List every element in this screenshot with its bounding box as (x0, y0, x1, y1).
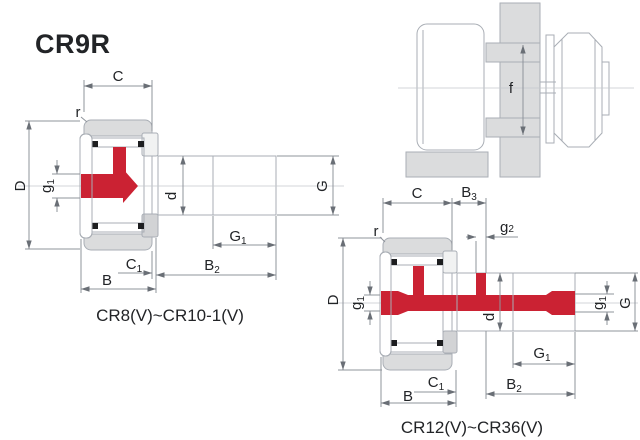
fig2-dim-label-g1-length: G1 (533, 345, 551, 364)
fig2-dim-label-c: C (412, 185, 423, 202)
fig3-plate-shoulder-top (486, 43, 540, 62)
fig2-seal-bottom-right (437, 340, 443, 346)
fig1-seal-top-right (138, 141, 144, 147)
fig1-seal-bottom-left (92, 223, 98, 229)
fig3-plate-shoulder-bottom (486, 118, 540, 137)
fig3-rail (406, 152, 488, 177)
fig2-seal-top-right (437, 259, 443, 265)
fig2-dim-label-g1-right: g1 (590, 296, 609, 310)
fig1-seal-top-left (92, 141, 98, 147)
fig2-seal-bottom-left (391, 340, 397, 346)
page-title: CR9R (35, 29, 111, 59)
fig2-dim-label-b2: B2 (506, 376, 522, 395)
fig1-dim-label-r: r (76, 104, 81, 121)
fig1-seal-bottom-right (138, 223, 144, 229)
fig1-labels: C r D g1 d G G1 B2 C1 B CR8(V)~CR10-1(V) (12, 68, 331, 325)
figure-mounting-example: f (398, 3, 634, 177)
fig3-roller (417, 24, 484, 150)
fig2-caption: CR12(V)~CR36(V) (401, 418, 543, 437)
drawing-page: C r D g1 d G G1 B2 C1 B CR8(V)~CR10-1(V) (0, 0, 640, 440)
fig2-dim-label-r: r (374, 223, 379, 240)
fig1-dim-label-b: B (102, 272, 112, 289)
fig2-dim-label-g2: g2 (500, 219, 514, 236)
fig2-dim-label-c1: C1 (428, 374, 445, 393)
fig2-dim-label-g-thread: G (617, 297, 634, 309)
figure-cr8-cr10-1: C r D g1 d G G1 B2 C1 B CR8(V)~CR10-1(V) (12, 68, 344, 325)
fig3-washer (546, 35, 554, 143)
fig1-dim-label-c1: C1 (126, 256, 143, 275)
fig2-dim-label-b: B (403, 388, 413, 405)
fig1-dim-label-d-stud: d (163, 192, 180, 200)
fig1-stud (158, 156, 276, 215)
fig1-dim-label-d-outer: D (12, 180, 29, 191)
fig1-dim-label-g1: g1 (38, 179, 57, 193)
fig1-dim-label-b2: B2 (204, 257, 220, 276)
fig2-dim-label-d-outer: D (325, 294, 342, 305)
fig2-dim-label-g1-left: g1 (348, 296, 367, 310)
fig3-mounting-plate (500, 3, 540, 177)
fig1-dim-label-g1-length: G1 (229, 228, 247, 247)
fig1-dim-label-g-thread: G (314, 180, 331, 192)
fig2-stud-flange-bottom (443, 331, 457, 353)
fig2-seal-top-left (391, 259, 397, 265)
technical-drawing: C r D g1 d G G1 B2 C1 B CR8(V)~CR10-1(V) (0, 0, 640, 440)
figure-cr12-cr36: C B3 g2 r D g1 d G1 B2 C1 B g1 G CR12(V)… (325, 184, 638, 437)
fig2-dim-label-b3: B3 (461, 184, 477, 203)
fig2-stud-flange-top (443, 251, 457, 273)
fig3-stud-end (602, 62, 609, 115)
fig2-dim-label-d-stud: d (481, 313, 498, 321)
fig1-caption: CR8(V)~CR10-1(V) (96, 306, 244, 325)
fig1-dim-label-c: C (113, 68, 124, 85)
